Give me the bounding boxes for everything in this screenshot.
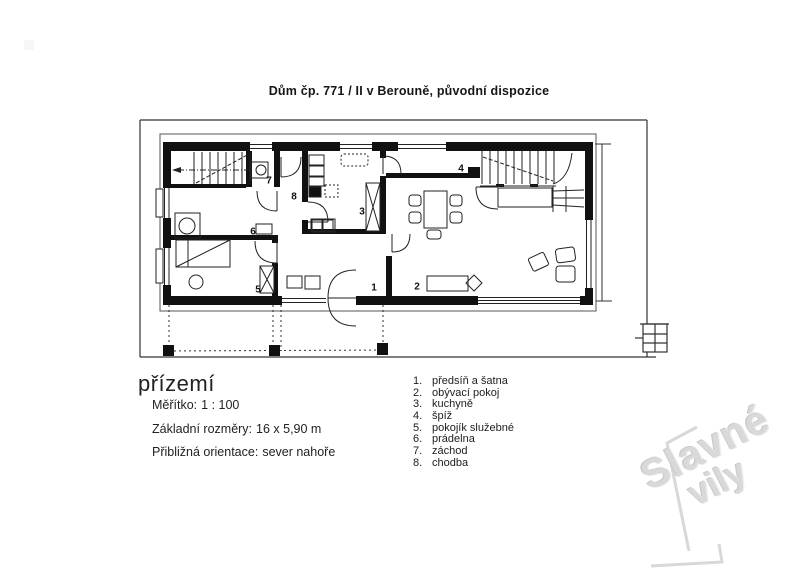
scale-row: Měřítko:1 : 100 — [152, 398, 239, 412]
room-number-label: 2 — [414, 282, 420, 293]
room-number-label: 5 — [255, 285, 261, 296]
staircase-right — [480, 151, 584, 212]
scanned-floor-plan-page: Dům čp. 771 / II v Berouně, původní disp… — [0, 0, 800, 582]
legend-item: 3.kuchyně — [413, 399, 514, 411]
floor-name: přízemí — [138, 371, 215, 397]
room-number-label: 7 — [266, 176, 272, 187]
room-number-label: 3 — [359, 207, 365, 218]
veranda — [163, 305, 389, 356]
orientation-label: Přibližná orientace: — [152, 445, 258, 459]
scale-value: 1 : 100 — [201, 398, 239, 412]
legend-item: 1.předsíň a šatna — [413, 376, 514, 388]
dimensions-row: Základní rozměry:16 x 5,90 m — [152, 422, 321, 436]
scale-label: Měřítko: — [152, 398, 197, 412]
legend-item: 8.chodba — [413, 458, 514, 470]
dimensions-value: 16 x 5,90 m — [256, 422, 321, 436]
room-number-label: 4 — [458, 164, 464, 175]
room-number-label: 6 — [250, 227, 256, 238]
room-legend: 1.předsíň a šatna 2.obývací pokoj 3.kuch… — [413, 376, 514, 470]
orientation-value: sever nahoře — [262, 445, 335, 459]
room-number-label: 1 — [371, 283, 377, 294]
orientation-row: Přibližná orientace:sever nahoře — [152, 445, 335, 459]
dimension-line — [595, 144, 612, 301]
legend-item: 4.špíž — [413, 411, 514, 423]
room-number-label: 8 — [291, 192, 297, 203]
dimensions-label: Základní rozměry: — [152, 422, 252, 436]
staircase-left — [172, 152, 251, 184]
